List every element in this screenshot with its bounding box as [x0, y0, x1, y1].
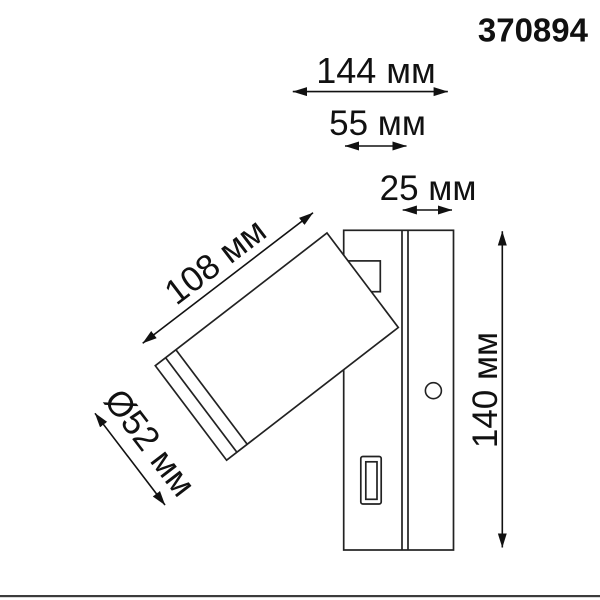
svg-text:144 мм: 144 мм: [316, 50, 436, 91]
svg-text:55 мм: 55 мм: [329, 104, 426, 143]
svg-text:370894: 370894: [478, 12, 589, 49]
svg-text:25 мм: 25 мм: [380, 169, 477, 208]
svg-text:140 мм: 140 мм: [466, 332, 505, 448]
